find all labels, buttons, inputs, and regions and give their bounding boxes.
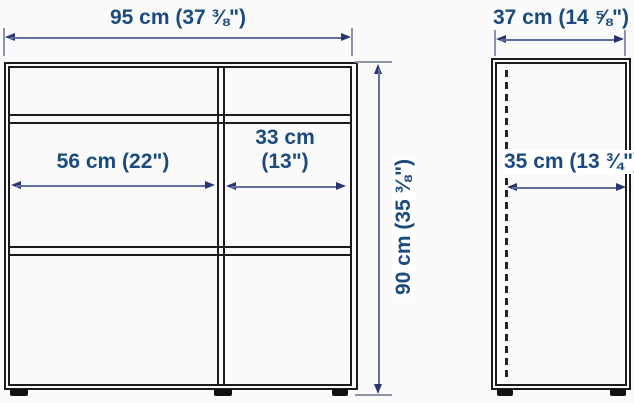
dimension-line <box>512 187 621 189</box>
dimension-line <box>10 37 346 39</box>
extension-line <box>355 394 392 396</box>
right-compartment-arrow <box>226 181 346 192</box>
arrowhead-right-icon <box>614 35 624 43</box>
arrowhead-right-icon <box>616 183 626 191</box>
front-height-dimension-label: 90 cm (35 ⅜") <box>392 157 416 297</box>
dimension-line <box>501 39 619 41</box>
shelf-line-middle <box>8 246 352 256</box>
extension-line <box>351 28 353 56</box>
dimension-line <box>16 185 210 187</box>
right-compartment-label-line1: 33 cm <box>255 126 315 150</box>
dimension-line <box>231 186 341 188</box>
extension-line <box>355 61 392 63</box>
side-foot-left <box>497 389 513 396</box>
vertical-divider <box>217 66 225 386</box>
side-depth-arrow <box>507 182 626 193</box>
left-compartment-dimension-label: 56 cm (22") <box>57 150 170 174</box>
side-view-inner-outline <box>495 62 627 386</box>
front-foot-right <box>332 389 348 396</box>
extension-line <box>624 30 626 56</box>
dimension-line <box>378 69 380 389</box>
shelf-line-top <box>8 114 352 124</box>
left-compartment-arrow <box>11 180 215 191</box>
arrowhead-right-icon <box>205 181 215 189</box>
dimension-diagram: 95 cm (37 ⅜") 90 cm (35 ⅜") 56 cm (22") … <box>0 0 634 403</box>
arrowhead-right-icon <box>341 33 351 41</box>
back-panel-dashed-line <box>505 70 508 382</box>
arrowhead-right-icon <box>336 182 346 190</box>
front-foot-left <box>10 389 28 396</box>
side-width-dimension-label: 37 cm (14 ⅝") <box>493 6 629 30</box>
side-width-arrow <box>496 34 624 45</box>
front-width-arrow <box>5 32 351 43</box>
arrowhead-down-icon <box>374 384 382 394</box>
front-height-arrow <box>373 64 384 394</box>
side-foot-right <box>610 389 626 396</box>
side-depth-dimension-label: 35 cm (13 ¾") <box>502 150 634 174</box>
right-compartment-label-line2: (13") <box>255 150 315 174</box>
front-foot-middle <box>214 389 232 396</box>
right-compartment-dimension-label: 33 cm (13") <box>255 126 315 174</box>
front-width-dimension-label: 95 cm (37 ⅜") <box>110 6 246 30</box>
